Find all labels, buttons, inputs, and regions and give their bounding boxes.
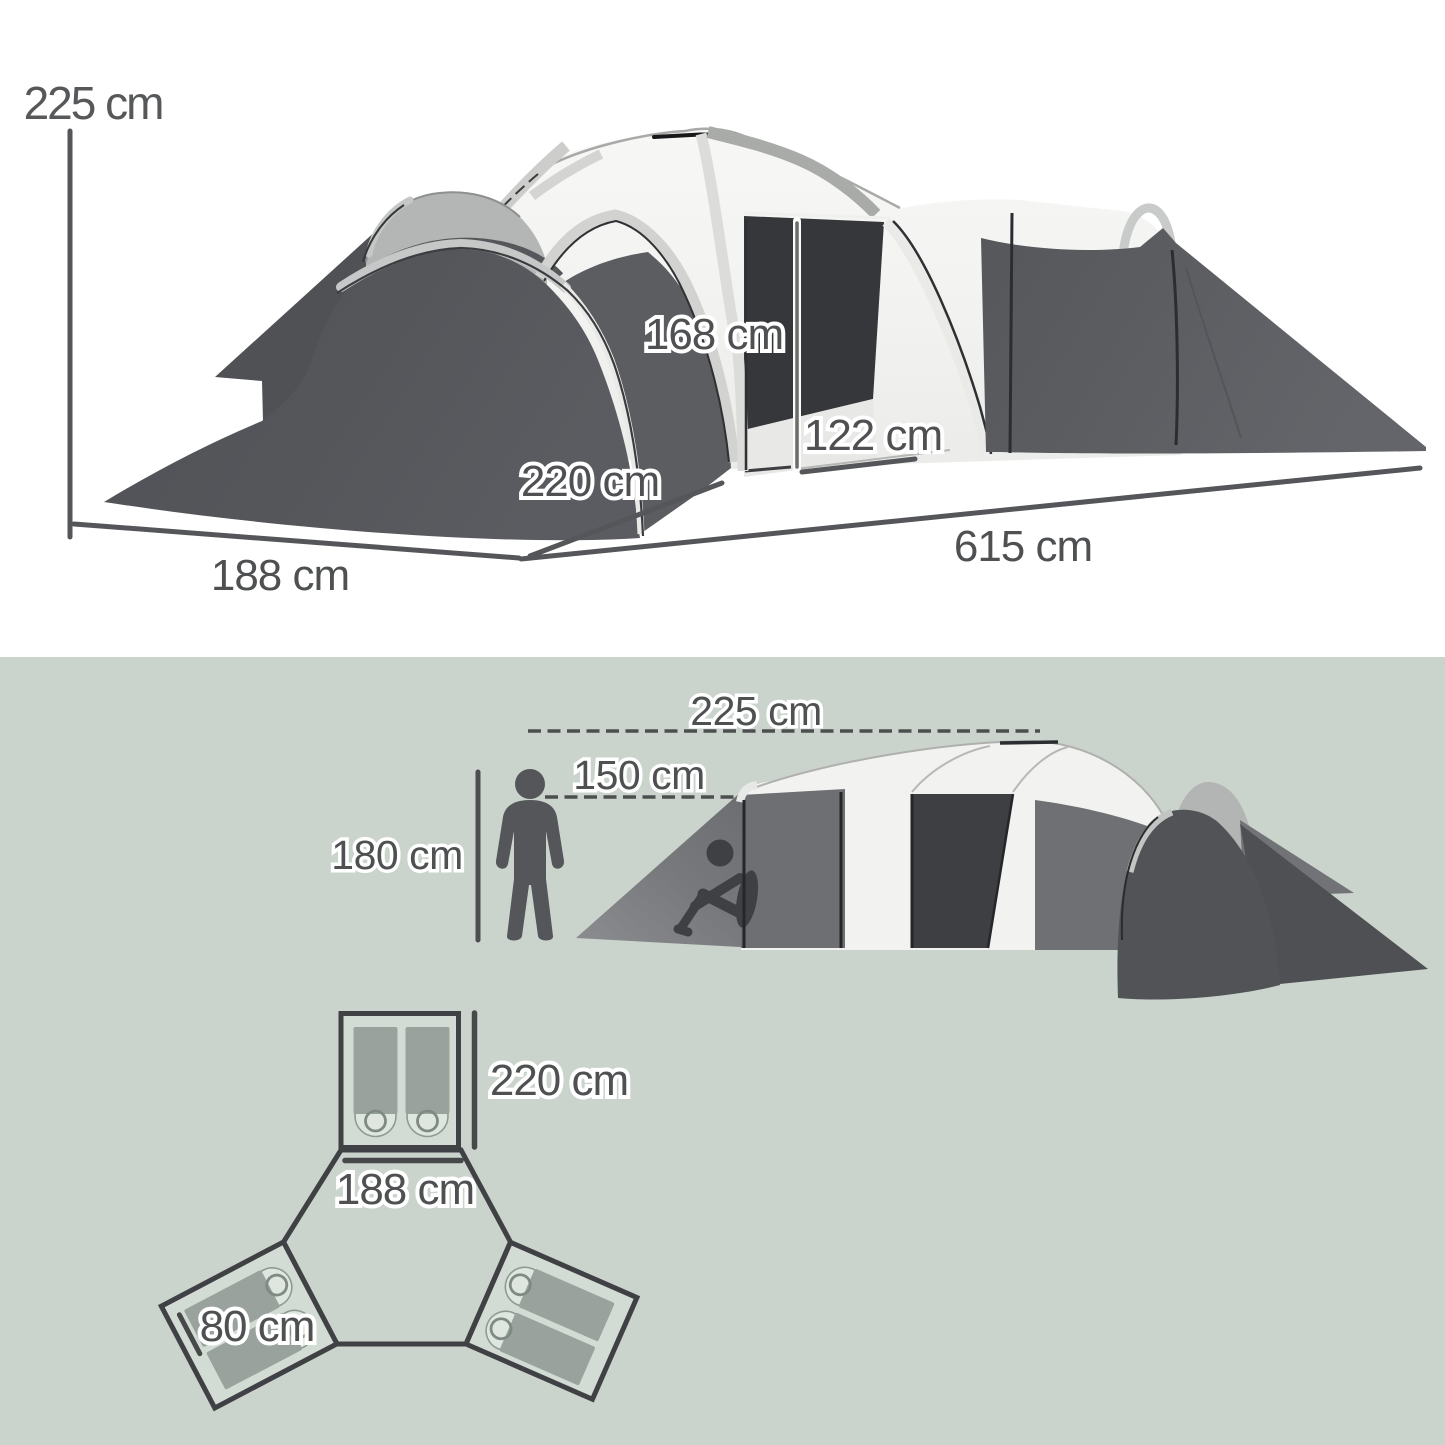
svg-text:180 cm: 180 cm [331, 832, 462, 878]
svg-text:122 cm: 122 cm [804, 411, 942, 460]
svg-text:225 cm: 225 cm [24, 77, 163, 129]
svg-text:220 cm: 220 cm [521, 457, 659, 506]
svg-text:225 cm: 225 cm [690, 688, 821, 734]
svg-text:150 cm: 150 cm [573, 752, 704, 798]
svg-text:615 cm: 615 cm [954, 522, 1092, 571]
svg-text:80 cm: 80 cm [200, 1302, 315, 1351]
svg-text:188 cm: 188 cm [336, 1165, 474, 1214]
svg-text:168 cm: 168 cm [645, 310, 783, 359]
svg-text:220 cm: 220 cm [490, 1056, 628, 1105]
svg-text:188 cm: 188 cm [211, 551, 349, 600]
